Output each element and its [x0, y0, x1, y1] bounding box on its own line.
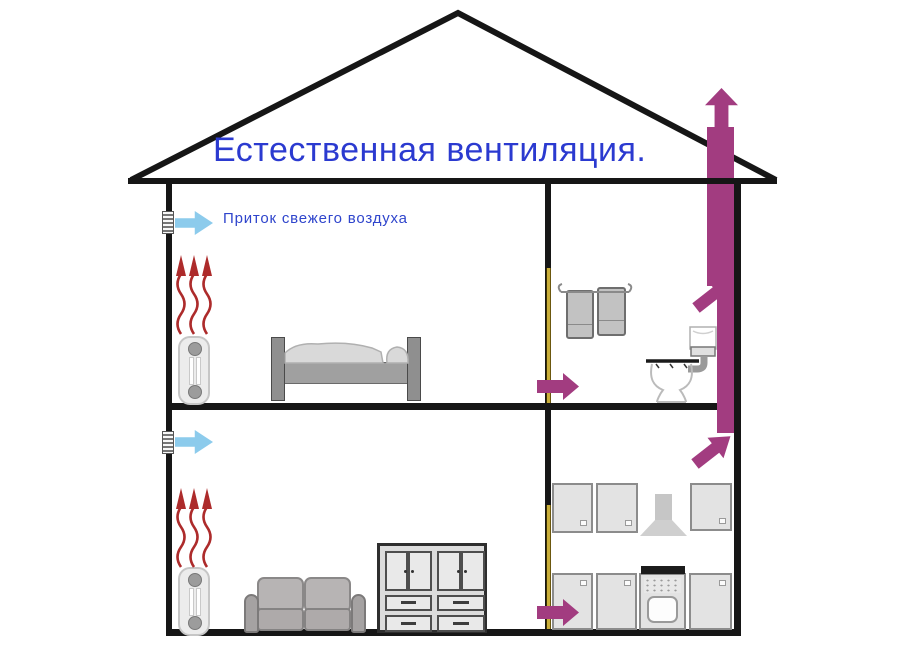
kitchen-wall-cabinet [690, 483, 732, 531]
sofa-seat-cushion [257, 608, 304, 631]
kitchen-base-cabinet [596, 573, 637, 630]
page-title: Естественная вентиляция. [213, 131, 646, 170]
oven-door [647, 596, 678, 623]
radiator-fin [189, 357, 194, 385]
wall-vent-grille-icon [162, 211, 174, 234]
drawer-handle-icon [401, 601, 416, 604]
radiator-lower [178, 567, 210, 636]
towel [597, 287, 626, 336]
sofa [244, 577, 366, 633]
stove [639, 573, 686, 630]
drawer-handle-icon [453, 622, 469, 625]
supply-air-arrow-icon [175, 430, 213, 454]
bed-pillow [387, 347, 408, 363]
kitchen-wall-cabinet [596, 483, 638, 533]
exhaust-flow-arrow-icon [537, 373, 579, 400]
cabinet-handle-icon [625, 520, 632, 526]
kitchen-base-cabinet [552, 573, 593, 630]
radiator-valve-icon [188, 616, 202, 630]
cabinet-handle-icon [719, 580, 726, 586]
toilet [646, 327, 716, 402]
heat-wave-arrows-lower [176, 488, 212, 567]
door-knob-icon [464, 570, 467, 573]
heat-wave-arrows-upper [176, 255, 212, 334]
supply-air-arrow-icon [175, 211, 213, 235]
cabinet-handle-icon [580, 520, 587, 526]
cabinet-handle-icon [624, 580, 631, 586]
towel [566, 290, 594, 339]
bed-headboard [271, 337, 285, 401]
door-knob-icon [411, 570, 414, 573]
sofa-armrest [244, 594, 259, 633]
exhaust-flow-arrow-icon [687, 426, 738, 474]
stove-control-panel [644, 578, 681, 593]
exhaust-duct-upper [707, 127, 734, 286]
eave-line [128, 178, 777, 184]
drawer-handle-icon [401, 622, 416, 625]
drawer-handle-icon [453, 601, 469, 604]
door-knob-icon [457, 570, 460, 573]
door-undercut-upper [546, 268, 551, 403]
radiator-valve-icon [188, 385, 202, 399]
towel-fold [599, 320, 624, 321]
radiator-upper [178, 336, 210, 405]
wall-vent-grille-icon [162, 431, 174, 454]
kitchen-base-cabinet [689, 573, 732, 630]
second-floor-slab [166, 403, 741, 410]
supply-air-label: Приток свежего воздуха [223, 210, 408, 227]
dresser [377, 543, 487, 633]
door-undercut-lower [546, 505, 551, 629]
range-hood-chimney [655, 494, 672, 522]
radiator-fin [196, 588, 201, 616]
range-hood [640, 520, 687, 536]
cabinet-handle-icon [580, 580, 587, 586]
bed-frame [277, 362, 416, 384]
cabinet-handle-icon [719, 518, 726, 524]
ventilation-scheme: Естественная вентиляция. Приток свежего … [0, 0, 914, 650]
radiator-valve-icon [188, 573, 202, 587]
kitchen-wall-cabinet [552, 483, 593, 533]
radiator-fin [189, 588, 194, 616]
door-knob-icon [404, 570, 407, 573]
sofa-armrest [351, 594, 366, 633]
exhaust-duct-lower [717, 286, 734, 433]
stove-cooktop [641, 566, 685, 574]
bed-footboard [407, 337, 421, 401]
towel-fold [568, 324, 592, 325]
radiator-fin [196, 357, 201, 385]
sofa-seat-cushion [304, 608, 351, 631]
radiator-valve-icon [188, 342, 202, 356]
bed-duvet [285, 343, 383, 363]
exhaust-outlet-arrow-icon [705, 88, 738, 129]
